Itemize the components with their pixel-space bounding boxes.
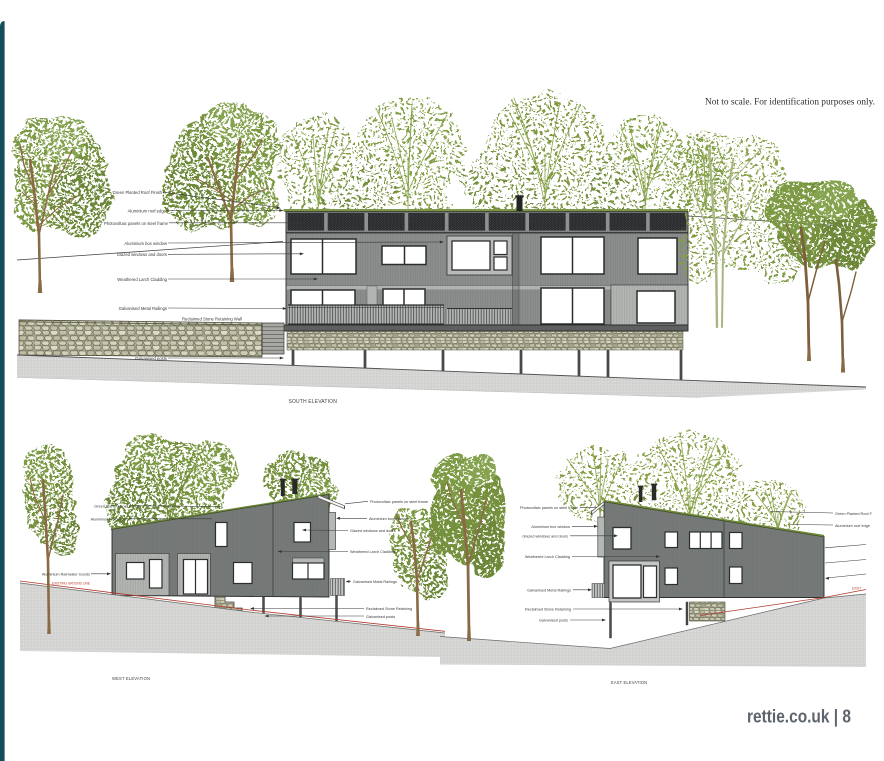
svg-text:Aluminium box window: Aluminium box window xyxy=(531,525,570,529)
svg-text:Photovoltaic panels on steel f: Photovoltaic panels on steel frame xyxy=(104,221,169,226)
svg-text:WEST ELEVATION: WEST ELEVATION xyxy=(112,676,150,681)
svg-text:Aluminium box window: Aluminium box window xyxy=(369,517,408,521)
svg-text:Galvanised Metal Railings: Galvanised Metal Railings xyxy=(119,306,167,311)
svg-text:Aluminium roof edge: Aluminium roof edge xyxy=(835,524,870,528)
svg-text:Glazed windows and doors: Glazed windows and doors xyxy=(350,529,396,533)
svg-text:Not to scale. For identificati: Not to scale. For identification purpose… xyxy=(705,97,875,107)
svg-text:Weathered Larch Cladding: Weathered Larch Cladding xyxy=(350,550,395,554)
svg-text:Weathered Larch Cladding: Weathered Larch Cladding xyxy=(525,555,570,559)
svg-text:EAST ELEVATION: EAST ELEVATION xyxy=(611,680,647,685)
svg-text:Glazed windows and doors: Glazed windows and doors xyxy=(117,252,167,257)
svg-text:Photovoltaic panels on steel f: Photovoltaic panels on steel frame xyxy=(370,500,428,504)
svg-text:Galvanised Metal Railings: Galvanised Metal Railings xyxy=(527,588,571,592)
svg-text:Reclaimed Stone Retaining: Reclaimed Stone Retaining xyxy=(366,607,412,611)
svg-text:Aluminium roof edge: Aluminium roof edge xyxy=(128,208,167,213)
svg-text:Galvanised posts: Galvanised posts xyxy=(366,615,395,619)
svg-text:Photovoltaic panels on steel f: Photovoltaic panels on steel frame xyxy=(520,506,578,510)
svg-text:Glazed windows and doors: Glazed windows and doors xyxy=(522,534,568,538)
svg-text:Galvanised posts: Galvanised posts xyxy=(539,619,568,623)
svg-text:Aluminium box window: Aluminium box window xyxy=(124,241,168,246)
svg-text:Green Planted Roof Finish: Green Planted Roof Finish xyxy=(113,190,163,195)
svg-text:Reclaimed Stone Retaining Wall: Reclaimed Stone Retaining Wall xyxy=(182,316,242,321)
svg-text:Green Planted Roof F: Green Planted Roof F xyxy=(835,512,873,516)
svg-text:Galvanised Metal Railings: Galvanised Metal Railings xyxy=(353,580,397,584)
svg-text:Galvanised posts: Galvanised posts xyxy=(135,356,167,361)
svg-text:Weathered Larch Cladding: Weathered Larch Cladding xyxy=(117,277,167,282)
svg-text:Green Planted Roof Finish: Green Planted Roof Finish xyxy=(94,505,139,509)
svg-text:SOUTH ELEVATION: SOUTH ELEVATION xyxy=(289,399,338,405)
svg-text:Reclaimed Stone Retaining: Reclaimed Stone Retaining xyxy=(525,608,571,612)
svg-text:Aluminium roof edge: Aluminium roof edge xyxy=(91,518,126,522)
svg-text:EXIST: EXIST xyxy=(852,587,861,591)
svg-text:rettie.co.uk | 8: rettie.co.uk | 8 xyxy=(747,706,851,727)
svg-text:Aluminium Rainwater Goods: Aluminium Rainwater Goods xyxy=(42,572,90,576)
svg-text:EXISTING GROUND LINE: EXISTING GROUND LINE xyxy=(52,581,90,585)
